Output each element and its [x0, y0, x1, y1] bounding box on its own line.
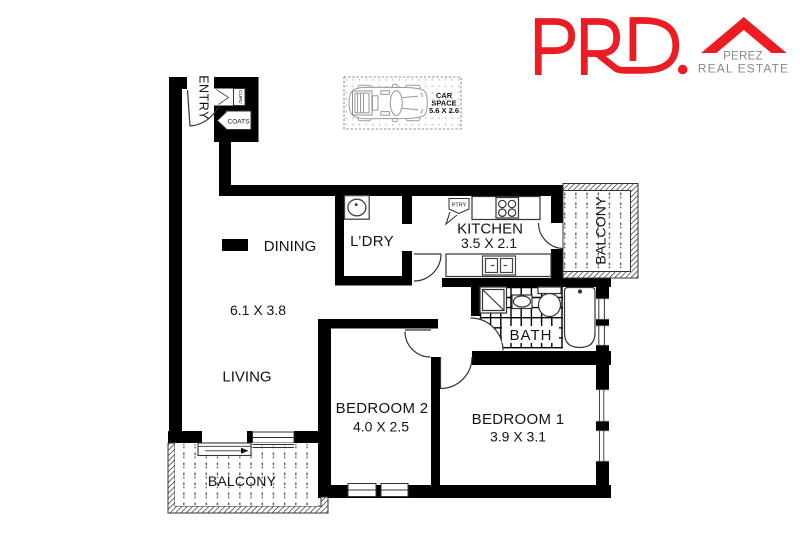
svg-text:ENTRY: ENTRY — [197, 75, 211, 120]
svg-text:CUPD: CUPD — [237, 90, 243, 104]
svg-text:COATS: COATS — [228, 119, 251, 126]
svg-text:BEDROOM 1: BEDROOM 1 — [472, 411, 565, 428]
svg-text:6.1 X 3.8: 6.1 X 3.8 — [230, 302, 286, 318]
svg-text:BEDROOM 2: BEDROOM 2 — [336, 400, 429, 417]
svg-text:BALCONY: BALCONY — [208, 473, 277, 489]
svg-text:PTRY: PTRY — [452, 203, 467, 209]
svg-text:BALCONY: BALCONY — [593, 196, 609, 265]
svg-text:L’DRY: L’DRY — [350, 233, 394, 250]
svg-text:BATH: BATH — [510, 327, 553, 344]
svg-text:REAL ESTATE: REAL ESTATE — [698, 62, 789, 76]
svg-text:3.9 X 3.1: 3.9 X 3.1 — [490, 429, 546, 445]
svg-text:LIVING: LIVING — [222, 369, 271, 386]
svg-text:5.6 X 2.6: 5.6 X 2.6 — [429, 106, 459, 115]
svg-text:DINING: DINING — [264, 238, 317, 255]
svg-text:3.5 X 2.1: 3.5 X 2.1 — [461, 235, 517, 251]
svg-text:4.0 X 2.5: 4.0 X 2.5 — [353, 419, 409, 435]
